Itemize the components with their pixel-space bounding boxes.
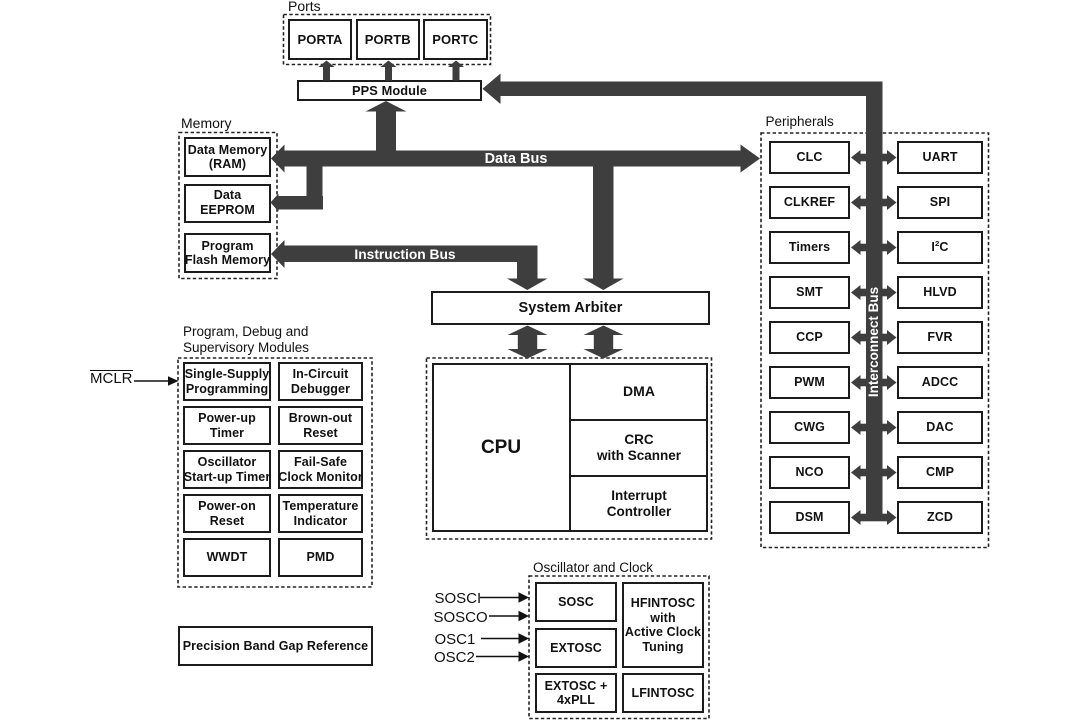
svg-text:Interconnect Bus: Interconnect Bus (866, 287, 881, 397)
svg-text:Instruction Bus: Instruction Bus (354, 247, 456, 262)
svg-text:Data Bus: Data Bus (485, 151, 548, 167)
